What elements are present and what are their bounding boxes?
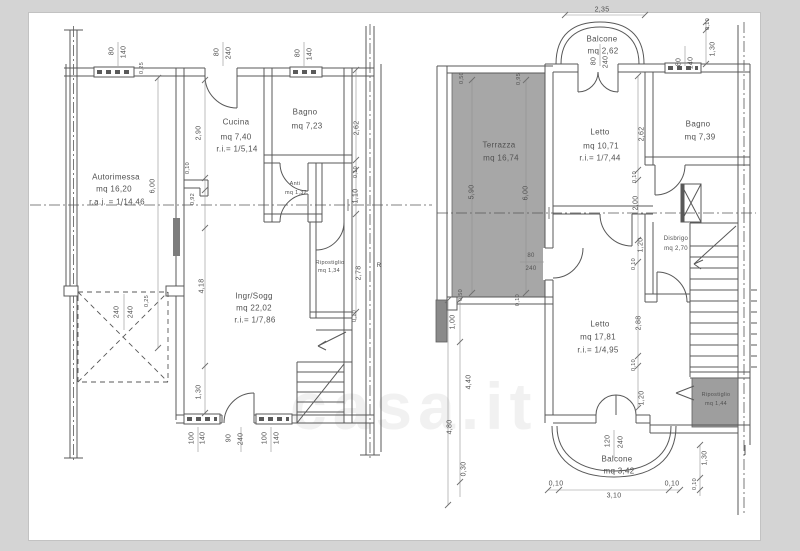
floorplan-drawing — [0, 0, 800, 551]
ff-letto1-ratio: r.i.= 1/7,44 — [579, 154, 620, 163]
dim-ff-terr-h1: 5,90 — [469, 185, 476, 200]
dim-ff-top-right: 1,30 — [710, 42, 717, 57]
dim-ff-inner-1: 0,10 — [632, 171, 638, 183]
dim-gf-garage-off: 0,25 — [144, 295, 150, 307]
ff-balcone-s-name: Balcone — [601, 455, 632, 464]
gf-anti-name: Anti — [290, 181, 301, 187]
dim-ff-left-2: 4,80 — [447, 420, 454, 435]
gf-cucina-name: Cucina — [223, 118, 250, 127]
gf-ingr-ratio: r.i.= 1/7,86 — [234, 316, 275, 325]
gf-autorimessa-area: mq 16,20 — [96, 185, 132, 194]
dim-ff-left-0: 1,00 — [450, 315, 457, 330]
ff-disbrigo-area: mq 2,70 — [664, 246, 688, 252]
ff-balcone-n-area: mq 2,62 — [587, 47, 618, 56]
dim-ff-inner-3: 1,20 — [638, 238, 645, 253]
floorplan-sheet: casa.it — [0, 0, 800, 551]
dim-ff-terr-tl: 0,50 — [459, 72, 465, 84]
dim-ff-bot-right-off: 0,10 — [692, 478, 698, 490]
ground-floor-plan — [30, 24, 432, 461]
dim-gf-garage-h: 240 — [128, 306, 135, 319]
dim-ff-bot-right: 1,30 — [702, 451, 709, 466]
dim-ff-balc-door-w: 80 — [591, 57, 598, 65]
dim-gf-top-win1-w: 80 — [109, 47, 116, 55]
gf-anti-area: mq 1,32 — [285, 190, 307, 196]
dim-gf-left-0: 2,90 — [196, 126, 203, 141]
dim-ff-terr-tr: 0,95 — [516, 73, 522, 85]
ff-bagno-name: Bagno — [686, 120, 711, 129]
dim-gf-right-0: 2,62 — [354, 121, 361, 136]
first-floor-plan — [436, 22, 757, 516]
dim-ff-terr-h2: 6,00 — [523, 186, 530, 201]
dim-gf-top-offset: 0,25 — [139, 62, 145, 74]
dim-gf-left-4: 4,18 — [199, 279, 206, 294]
dim-ff-bot-door-h: 240 — [618, 436, 625, 449]
ff-ripostiglio-name: Ripostiglio — [702, 392, 731, 398]
dim-ff-inner-5: 2,88 — [636, 316, 643, 331]
ff-letto1-area: mq 10,71 — [583, 142, 619, 151]
dim-ff-terr-door-w: 80 — [527, 253, 534, 259]
dim-gf-right-2: 1,10 — [353, 189, 360, 204]
dim-gf-bot-door-w: 90 — [226, 434, 233, 442]
dim-gf-top-win2-w: 80 — [295, 49, 302, 57]
gf-cucina-area: mq 7,40 — [220, 133, 251, 142]
dim-ff-left-1: 4,40 — [466, 375, 473, 390]
dim-gf-right-3: 2,78 — [356, 266, 363, 281]
dim-ff-bot-2: 0,10 — [665, 481, 680, 488]
gf-bagno-name: Bagno — [293, 108, 318, 117]
dim-gf-top-win2-h: 140 — [307, 48, 314, 61]
dim-ff-inner-2: 2,00 — [633, 196, 640, 211]
dim-gf-left-3: 0,92 — [190, 193, 196, 205]
dim-ff-bagno-win-w: 80 — [676, 58, 683, 66]
ff-terrazza-area: mq 16,74 — [483, 154, 519, 163]
dim-gf-bot-win1-h: 140 — [200, 432, 207, 445]
gf-autorimessa-name: Autorimessa — [92, 173, 140, 182]
dim-gf-right-1: 0,10 — [353, 166, 359, 178]
dim-gf-bot-win2-w: 100 — [262, 432, 269, 445]
dim-ff-terr-bl: 0,50 — [458, 289, 464, 301]
dim-gf-right-4: 0,10 — [352, 310, 358, 322]
dim-ff-terr-br: 0,10 — [515, 294, 521, 306]
gf-autorimessa-ratio: r.a.i. = 1/14,46 — [89, 198, 145, 207]
dim-ff-terr-door-h: 240 — [526, 266, 537, 272]
dim-ff-inner-0: 2,62 — [639, 127, 646, 142]
dim-ff-bot-1: 3,10 — [607, 493, 622, 500]
gf-ripostiglio-name: Ripostiglio — [316, 260, 345, 266]
dim-gf-bot-door-h: 240 — [238, 433, 245, 446]
dim-gf-left-1: 0,10 — [185, 162, 191, 174]
ff-terrazza-name: Terrazza — [482, 141, 515, 150]
dim-ff-inner-7: 1,20 — [639, 391, 646, 406]
dim-ff-balc-door-h: 240 — [603, 56, 610, 69]
ff-letto2-area: mq 17,81 — [580, 333, 616, 342]
dim-ff-inner-4: 0,10 — [631, 258, 637, 270]
dim-gf-bot-win1-w: 100 — [189, 432, 196, 445]
dim-ff-inner-6: 0,10 — [631, 359, 637, 371]
dim-ff-bot-door-w: 120 — [605, 435, 612, 448]
dim-ff-bagno-win-h: 140 — [688, 57, 695, 70]
dim-gf-left-2: 6,00 — [150, 179, 157, 194]
dim-gf-bot-win2-h: 140 — [274, 432, 281, 445]
gf-cucina-ratio: r.i.= 1/5,14 — [216, 145, 257, 154]
dim-ff-top-width: 2,35 — [595, 7, 610, 14]
dim-ff-bot-0: 0,10 — [549, 481, 564, 488]
ff-balcone-n-name: Balcone — [586, 35, 617, 44]
ff-disbrigo-name: Disbrigo — [664, 236, 688, 242]
dim-ff-top-right-off: 0,10 — [705, 18, 711, 30]
gf-ingr-area: mq 22,02 — [236, 304, 272, 313]
dim-ff-left-3: 0,30 — [461, 462, 468, 477]
dim-gf-left-5: 1,30 — [196, 385, 203, 400]
dim-gf-top-win1-h: 140 — [121, 46, 128, 59]
ff-ripostiglio-area: mq 1,44 — [705, 401, 727, 407]
gf-bagno-area: mq 7,23 — [291, 122, 322, 131]
dim-gf-garage-w: 240 — [114, 306, 121, 319]
ff-letto2-name: Letto — [590, 320, 609, 329]
ff-letto1-name: Letto — [590, 128, 609, 137]
gf-neighbor-partial-label: R — [377, 263, 382, 269]
gf-ingr-name: Ingr/Sogg — [235, 292, 272, 301]
ff-letto2-ratio: r.i.= 1/4,95 — [577, 346, 618, 355]
ff-bagno-area: mq 7,39 — [684, 133, 715, 142]
gf-ripostiglio-area: mq 1,34 — [318, 268, 340, 274]
ff-balcone-s-area: mq 3,42 — [603, 467, 634, 476]
dim-gf-top-door-h: 240 — [226, 47, 233, 60]
dim-gf-top-door-w: 80 — [214, 48, 221, 56]
